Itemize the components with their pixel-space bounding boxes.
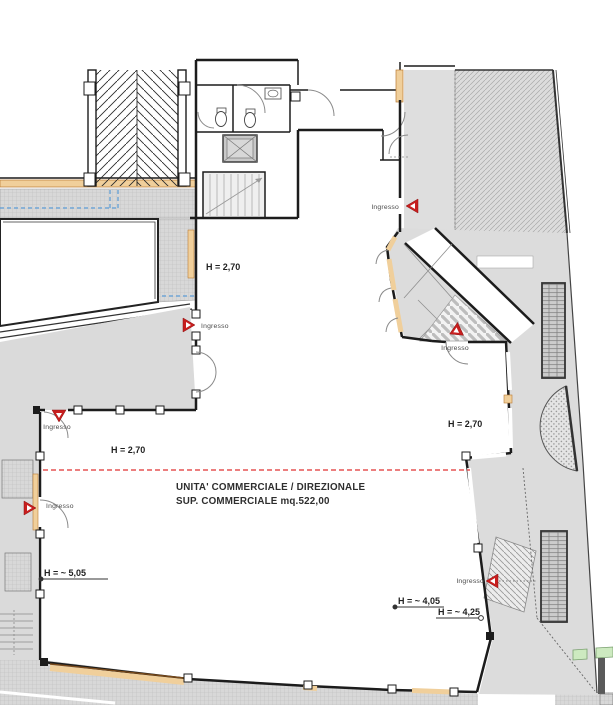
height-label: H = 2,70 [111, 445, 145, 455]
boundary-wall [598, 658, 605, 694]
ingresso-marker [52, 410, 66, 422]
height-label: H = ~ 5,05 [44, 568, 86, 578]
sink-icon [265, 88, 281, 99]
stair-interior [203, 172, 265, 218]
lightwell [0, 219, 158, 326]
ingresso-label: Ingresso [441, 345, 469, 352]
ingresso-label: Ingresso [46, 503, 74, 510]
floor-plan-page: Ingresso Ingresso Ingresso Ingresso Ingr… [0, 0, 613, 705]
hedge-strip [573, 649, 587, 660]
ingresso-label: Ingresso [371, 204, 399, 211]
grate-lower [541, 531, 567, 622]
elevator [223, 135, 257, 162]
unit-title-line2: SUP. COMMERCIALE mq.522,00 [176, 496, 330, 507]
ingresso-label: Ingresso [201, 323, 229, 330]
ingresso-label: Ingresso [43, 424, 71, 431]
height-label: H = ~ 4,05 [398, 596, 440, 606]
hedge-strip [596, 647, 613, 658]
hatched-area-top-right [455, 70, 567, 257]
height-label: H = 2,70 [206, 262, 240, 272]
height-label: H = 2,70 [448, 419, 482, 429]
toilet-icon [245, 109, 256, 128]
window-band [396, 70, 403, 102]
height-label: H = ~ 4,25 [438, 607, 480, 617]
floor-plan-canvas: Ingresso Ingresso Ingresso Ingresso Ingr… [0, 0, 613, 705]
grate-upper [542, 283, 565, 378]
service-block [190, 60, 298, 218]
unit-title-line1: UNITA' COMMERCIALE / DIREZIONALE [176, 482, 366, 493]
window-band [33, 474, 38, 530]
toilet-icon [216, 108, 227, 127]
ingresso-label: Ingresso [456, 578, 484, 585]
stair-top-left [84, 70, 190, 186]
window-band [188, 230, 194, 278]
